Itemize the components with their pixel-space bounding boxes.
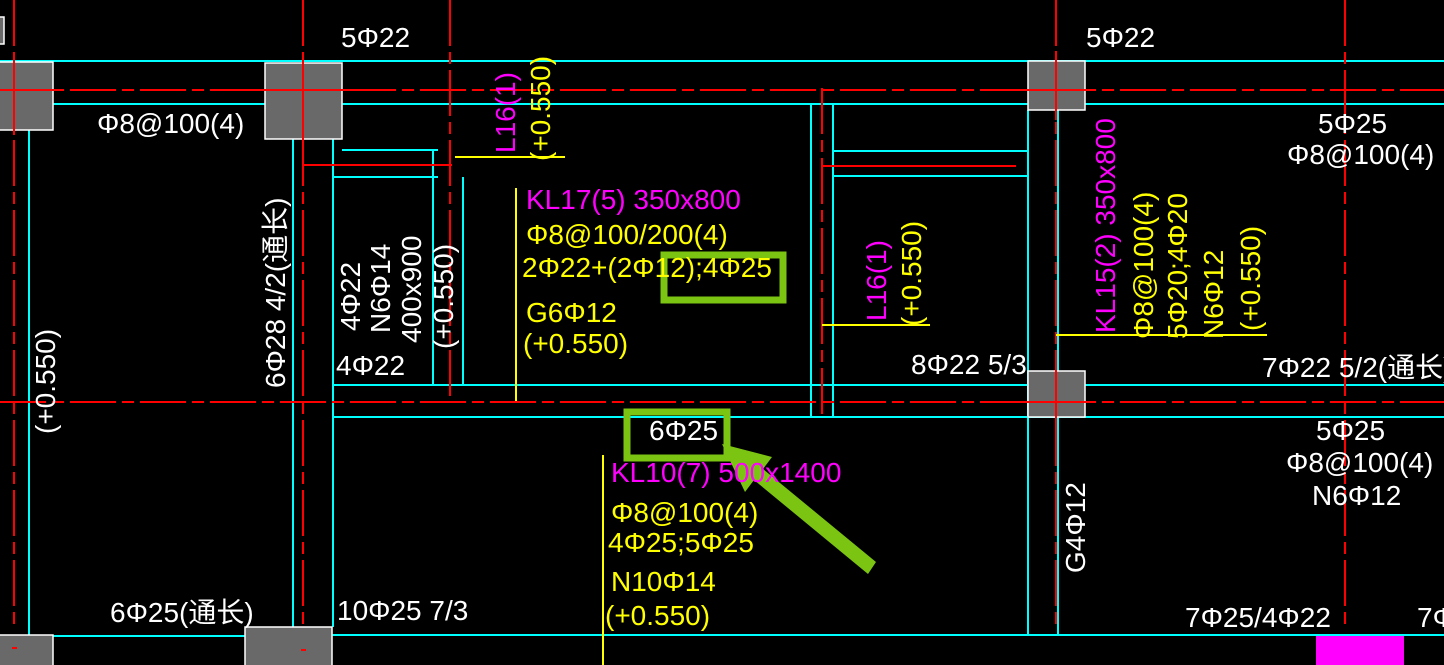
label-kl17-title: KL17(5) 350x800	[526, 186, 741, 214]
label-vbeam-n-bars: N6Φ14	[367, 244, 395, 333]
label-kl10-elevation: (+0.550)	[605, 602, 710, 630]
label-l16-top: L16(1)	[492, 72, 520, 153]
column	[245, 627, 332, 665]
label-kl17-side-bars: G6Φ12	[526, 299, 617, 327]
column	[0, 62, 53, 130]
label-l16-top-elevation: (+0.550)	[527, 56, 555, 161]
label-kl17-stirrup: Φ8@100/200(4)	[526, 221, 728, 249]
label-right-mid-n-bars: N6Φ12	[1312, 482, 1401, 510]
label-kl15-stirrup: Φ8@100(4)	[1130, 192, 1158, 339]
column-axis-crosses	[0, 51, 1363, 650]
label-kl10-n-bars: N10Φ14	[611, 568, 716, 596]
label-kl17-elevation: (+0.550)	[523, 330, 628, 358]
label-highlight-mid-bars: 6Φ25	[649, 417, 718, 445]
label-kl10-stirrup: Φ8@100(4)	[611, 499, 758, 527]
label-l16-mid: L16(1)	[863, 240, 891, 321]
label-bottom-left-bars: 6Φ25(通长)	[110, 599, 254, 627]
label-l16-mid-elevation: (+0.550)	[898, 221, 926, 326]
label-right-top-span: 5Φ25	[1318, 110, 1387, 138]
column-sliver	[0, 17, 4, 44]
column	[0, 635, 53, 665]
label-vbeam-bars-top: 4Φ22	[337, 262, 365, 331]
label-bottom-edge-clipped: 7Φ2	[1417, 604, 1444, 632]
label-kl15-n-bars: N6Φ12	[1200, 250, 1228, 339]
label-kl10-bars: 4Φ25;5Φ25	[608, 529, 754, 557]
label-top-left-stirrup: Φ8@100(4)	[97, 110, 244, 138]
label-right-top-stirrup: Φ8@100(4)	[1287, 141, 1434, 169]
label-vbeam-elevation: (+0.550)	[430, 244, 458, 349]
magenta-fill-block	[1316, 636, 1404, 665]
label-right-mid-span: 5Φ25	[1316, 417, 1385, 445]
label-top-right-span: 5Φ22	[1086, 24, 1155, 52]
label-mid-support-bars: 8Φ22 5/3	[911, 351, 1027, 379]
label-kl15-elevation: (+0.550)	[1237, 226, 1265, 331]
label-vbeam-size: 400x900	[398, 236, 426, 343]
cad-canvas: 5Φ22 Φ8@100(4) 5Φ22 5Φ25 Φ8@100(4) (+0.5…	[0, 0, 1444, 665]
label-right-support-bars: 7Φ22 5/2(通长)	[1262, 354, 1444, 382]
label-left-beam-bars: 6Φ28 4/2(通长)	[262, 198, 290, 388]
label-kl15-title: KL15(2) 350x800	[1092, 118, 1120, 333]
label-left-elevation: (+0.550)	[32, 329, 60, 434]
label-top-left-span: 5Φ22	[341, 24, 410, 52]
label-right-mid-stirrup: Φ8@100(4)	[1286, 449, 1433, 477]
label-g4-side-bars: G4Φ12	[1062, 482, 1090, 573]
secondary-beam-centerlines	[303, 165, 1016, 166]
label-vbeam-bars-bottom: 4Φ22	[336, 352, 405, 380]
label-bottom-right-bars: 7Φ25/4Φ22	[1185, 604, 1331, 632]
label-kl15-bars: 5Φ20;4Φ20	[1164, 193, 1192, 339]
label-kl10-title: KL10(7) 500x1400	[611, 459, 841, 487]
label-bottom-mid-bars: 10Φ25 7/3	[337, 597, 468, 625]
label-kl17-top-bars: 2Φ22+(2Φ12);4Φ25	[522, 254, 772, 282]
